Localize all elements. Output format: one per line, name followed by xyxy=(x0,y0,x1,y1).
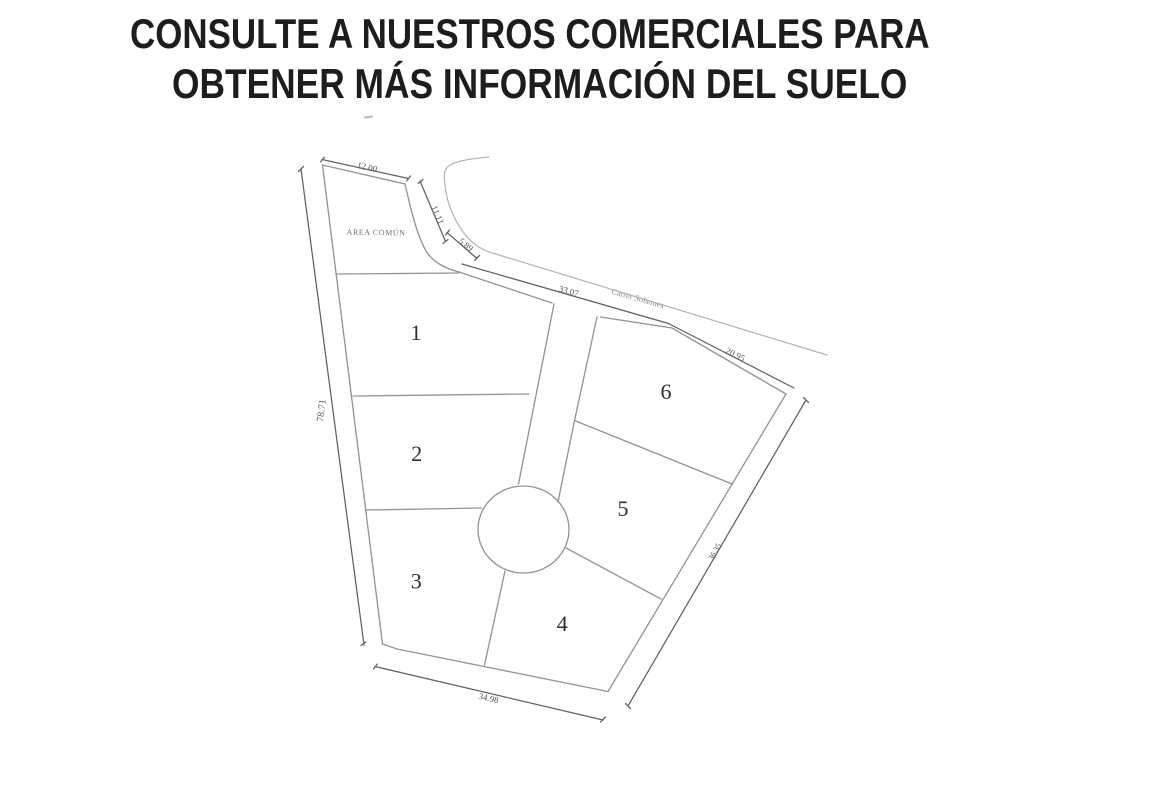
svg-text:5.89: 5.89 xyxy=(457,236,476,254)
svg-text:6: 6 xyxy=(661,379,672,404)
svg-text:34.98: 34.98 xyxy=(478,691,500,705)
svg-text:AREA COMÚN: AREA COMÚN xyxy=(346,226,405,237)
svg-text:2: 2 xyxy=(411,441,422,466)
svg-text:78.71: 78.71 xyxy=(315,399,329,423)
svg-text:33.07: 33.07 xyxy=(558,284,581,299)
svg-text:1: 1 xyxy=(411,320,422,345)
svg-text:12.00: 12.00 xyxy=(356,160,378,174)
svg-text:4: 4 xyxy=(557,611,568,636)
svg-text:36.35: 36.35 xyxy=(706,542,723,562)
svg-text:3: 3 xyxy=(411,569,422,594)
svg-text:Carrer Solsones: Carrer Solsones xyxy=(610,286,665,310)
svg-text:11.11: 11.11 xyxy=(429,204,446,226)
svg-text:5: 5 xyxy=(618,496,629,521)
